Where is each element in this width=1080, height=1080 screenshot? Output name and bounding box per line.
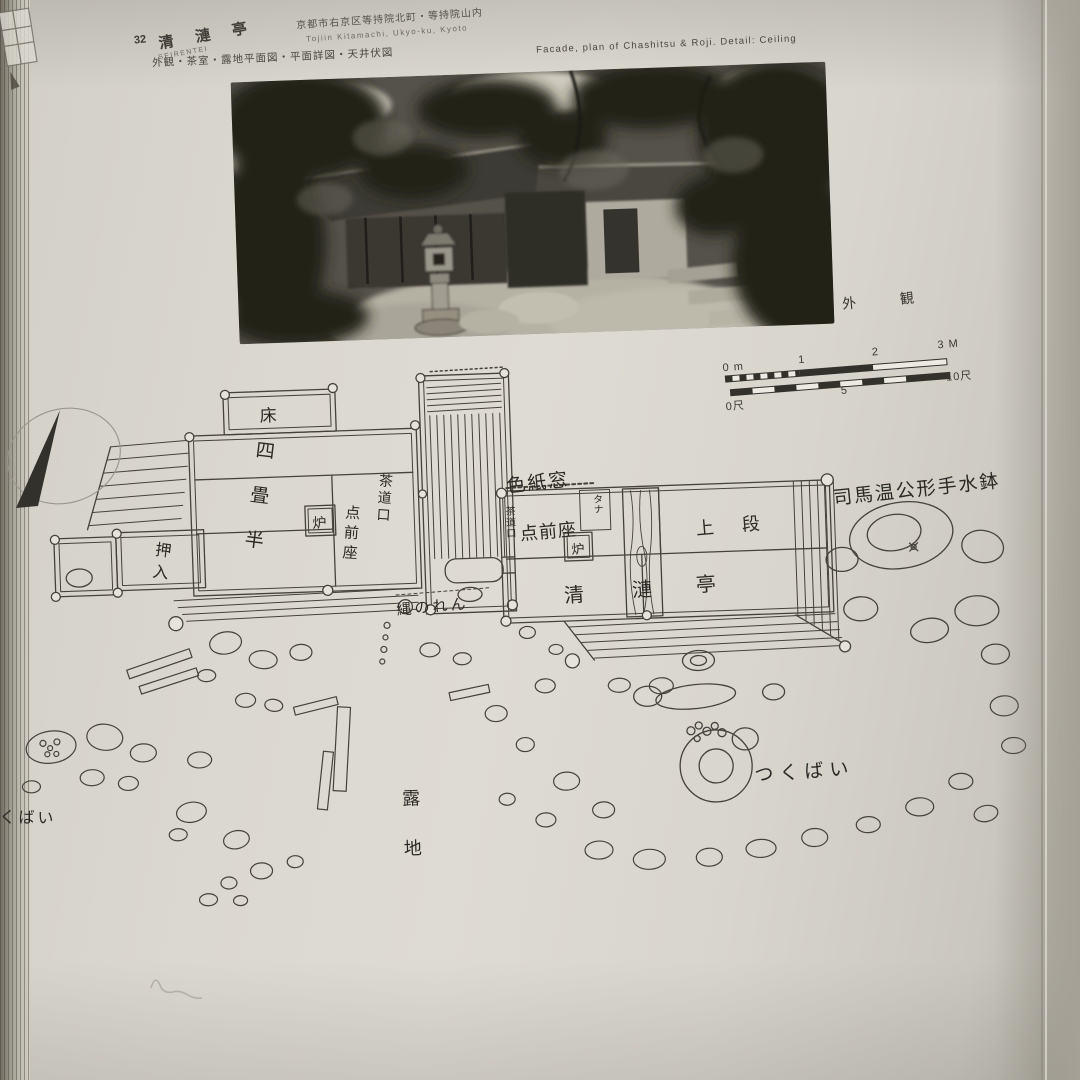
- chozubachi-basin: [824, 493, 1011, 670]
- label-hearth-right: 炉: [571, 538, 585, 557]
- left-building: [44, 381, 426, 635]
- book-photo: 32 清 漣 亭 SEIRENTEI 京都市右京区等持院北町・等持院山内 Toj…: [0, 0, 1080, 1080]
- label-hearth-left: 炉: [312, 512, 327, 532]
- label-host-mat-left: 点前座: [338, 504, 363, 565]
- stepping-stones-group: [17, 600, 1030, 913]
- label-ren: 漣: [631, 573, 653, 603]
- label-tokonoma: 床: [259, 401, 277, 427]
- label-sei: 清: [563, 578, 585, 608]
- floor-plan: 床 四畳半 炉 点前座 茶道口 押入 色紙窓 茶道口 点前座 タナ 炉 上段 清…: [0, 0, 1080, 1080]
- label-tsukubai-cut: くばい: [0, 803, 57, 828]
- label-roji: 露地: [397, 788, 426, 889]
- label-shelf: タナ: [589, 494, 605, 515]
- book-right-edge: [995, 0, 1080, 1080]
- label-tea-door-left: 茶道口: [373, 473, 397, 525]
- right-building: [496, 473, 851, 670]
- label-tea-door-right: 茶道口: [501, 506, 517, 540]
- page-edge-line: [1041, 0, 1043, 1080]
- page-edge-highlight: [1045, 0, 1047, 1080]
- label-host-mat-right: 点前座: [519, 515, 578, 546]
- label-tei: 亭: [695, 568, 717, 598]
